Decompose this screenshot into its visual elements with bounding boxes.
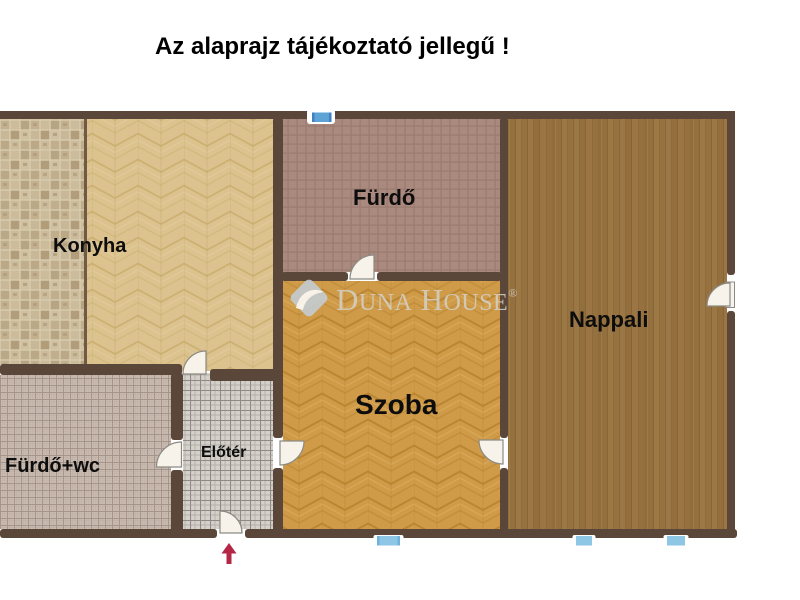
svg-text:Konyha: Konyha — [53, 235, 127, 257]
svg-text:Nappali: Nappali — [569, 307, 648, 332]
svg-text:Szoba: Szoba — [355, 389, 438, 420]
svg-text:Előtér: Előtér — [201, 444, 246, 461]
svg-text:Fürdő: Fürdő — [353, 185, 415, 210]
svg-text:Fürdő+wc: Fürdő+wc — [5, 455, 100, 477]
